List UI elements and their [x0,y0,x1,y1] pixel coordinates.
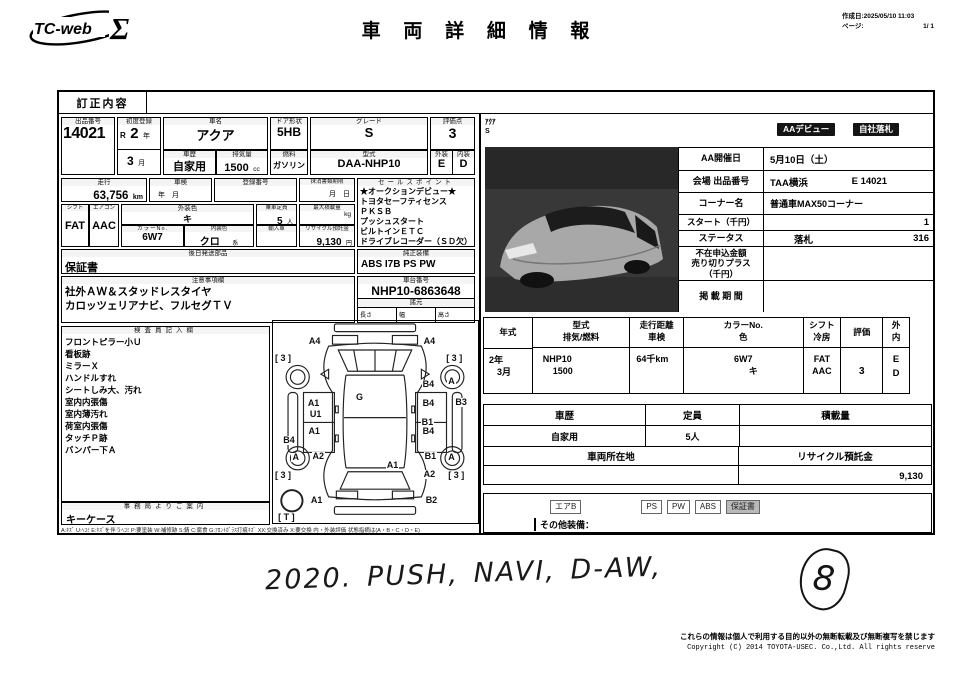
cell-history: 車歴 自家用 [163,150,216,175]
factory-equip-label: 純正装備 [358,250,474,257]
spec-col-color: カラーNo. 色 6W7 キ [684,318,803,393]
auction-venue-value: TAA横浜 [770,175,808,189]
damage-mark: A4 [308,337,322,346]
office-info-value: キーケース [62,510,269,525]
spec-color-header: 色 [684,332,802,344]
spec-ac-header: 冷房 [804,332,841,344]
logo-text: TC-web [34,21,92,38]
line: ＰＫＳＢ [360,207,474,217]
usage-load-header: 積載量 [740,405,931,425]
caption-model: ｱｸｱ [485,118,496,127]
history-label: 車歴 [164,151,215,158]
cell-doc-limit: 抹消書類期限 月 日 [299,178,355,202]
spec-shaken-header: 車検 [630,332,683,344]
handwritten-note: 2020. PUSH, NAVI, D-AW, [265,551,686,597]
cell-fuel: 燃料 ガソリン [270,150,308,175]
notes-list: 社外ＡＷ＆スタッドレスタイヤカロッツェリアナビ、フルセグＴＶ [62,284,354,313]
damage-mark: A2 [423,470,437,479]
cell-grade: グレード S [310,117,428,150]
inspector-notes-label: 検査員記入欄 [62,327,269,334]
ext-color-value: キ [122,212,253,225]
cell-capacity: 乗車定員 5 人 [256,204,297,225]
logo-sigma: Σ [109,11,129,46]
spec-ext-header: 外 [883,320,909,332]
ext-color-label: 外装色 [122,205,253,212]
int-grade-value: D [453,158,474,170]
spec-color-value: キ [684,365,802,377]
sales-points-list: ★オークションデビュー★トヨタセーフティセンスＰＫＳＢプッシュスタートビルトイン… [358,186,474,247]
inspector-notes-list: フロントピラー小Ｕ看板跡ミラーＸハンドルすれシートしみ大、汚れ室内内張傷室内薄汚… [62,334,269,456]
first-reg-month: 3 [127,154,134,168]
auction-row-venue: 会場 出品番号 TAA横浜 E 14021 [679,171,935,193]
usage-history-header: 車歴 [484,405,646,425]
cell-displacement: 排気量 1500 cc [216,150,268,175]
int-color-value: クロ [200,237,220,247]
cell-int-color: 内装色 クロ 系 [184,225,254,247]
auction-row-period: 掲 載 期 間 [679,281,935,312]
auction-venue-label: 会場 出品番号 [679,171,764,192]
cell-max-load: 最大積載量 kg [299,204,355,225]
spec-score-value: 3 [841,348,882,393]
damage-mark: [ 3 ] [274,471,292,480]
damage-mark: B1 [424,452,438,461]
print-meta: 作成日:2025/05/10 11:03 ページ: 1/ 1 [842,12,934,32]
cell-notes: 注意事項欄 社外ＡＷ＆スタッドレスタイヤカロッツェリアナビ、フルセグＴＶ [61,276,355,323]
chassis-value: NHP10-6863648 [358,284,474,299]
shaken-value: 年 月 [150,186,211,200]
cell-aircon: エアコン AAC [89,204,119,247]
auction-row-date: AA開催日 5月10日（土） [679,148,935,171]
page-title: 車 両 詳 細 情 報 [300,16,660,43]
spec-int-header: 内 [883,332,909,344]
score-value: 3 [431,125,474,141]
auction-row-start: スタート（千円） 1 [679,215,935,231]
auction-status-label: ステータス [679,231,764,246]
cell-shift: シフト FAT [61,204,89,247]
imported-label: 輸入車 [257,226,296,232]
auction-row-status: ステータス 落札 316 [679,231,935,247]
correction-row: 訂正内容 [59,92,933,114]
logo-swoosh-icon: TC-web Σ [25,5,137,51]
spec-disp-value: 1500 [543,365,630,377]
spec-colorno-value: 6W7 [684,353,802,365]
factory-equip-value: ABS I7B PS PW [358,257,474,270]
usage-history-value: 自家用 [484,426,646,446]
grade-label: グレード [311,118,427,125]
auction-row-corner: コーナー名 普通車MAX50コーナー [679,193,935,215]
diagram-marks: A4A4[ 3 ][ 3 ]B4AGA1B4B3U1B1A1B4B4AA2B1A… [273,321,478,523]
cell-office-info: 事務局よりご案内 キーケース [61,502,270,525]
damage-mark: A [447,453,456,462]
line: ビルトインＥＴＣ [360,227,474,237]
equipment-box: エアB PS PW ABS 保証書 その他装備： [483,493,932,533]
line: 荷室内張傷 [65,420,269,432]
shaken-label: 車検 [150,179,211,186]
usage-table: 車歴 定員 積載量 自家用 5人 車両所在地 リサイクル預託金 9,130 [483,404,932,485]
auction-status-price: 316 [913,233,929,244]
vehicle-photo [485,147,678,312]
int-grade-label: 内装 [453,151,474,158]
first-reg-label: 初度登録 [118,118,160,125]
spec-mileage-value: 64千km [630,348,683,393]
damage-mark: A1 [307,427,321,436]
equip-badge-pw: PW [667,500,690,514]
cell-sales-points: セールスポイント ★オークションデビュー★トヨタセーフティセンスＰＫＳＢプッシュ… [357,178,475,247]
vehicle-photo-image [485,147,678,312]
spec-col-mileage: 走行距離 車検 64千km [630,318,684,393]
spec-mileage-header: 走行距離 [630,320,683,332]
damage-mark: A [291,453,300,462]
sales-points-label: セールスポイント [358,179,474,186]
auction-corner-label: コーナー名 [679,193,764,214]
cell-exhibit-no: 出品番号 14021 [61,117,115,175]
damage-mark: [ 3 ] [274,354,292,363]
caption-grade: S [485,127,496,136]
line: ドライブレコーダー（ＳＤ欠） [360,237,474,247]
cell-later-parts: 後日発送部品 保証書 [61,249,355,274]
doc-limit-value: 月 日 [300,185,354,199]
auction-period-label: 掲 載 期 間 [679,281,764,312]
spec-disp-header: 排気/燃料 [533,332,630,344]
spec-int-value: D [883,367,909,381]
cell-color-no: カラーNo. 6W7 [121,225,184,247]
damage-mark: B4 [422,427,436,436]
spec-model-header: 型式 [533,320,630,332]
mileage-unit: km [133,194,143,201]
spec-model-value: NHP10 [543,353,630,365]
line: ハンドルすれ [65,372,269,384]
line: 社外ＡＷ＆スタッドレスタイヤ [65,286,354,300]
usage-capacity-value: 5人 [646,426,740,446]
aa-debut-badge: AAデビュー [777,123,835,136]
cell-door: ドア形状 5HB [270,117,308,150]
spec-month-value: 3月 [489,366,532,378]
damage-legend: A:ｷｽﾞ U:ﾍｺﾐ E:ｷｽﾞを伴うﾍｺﾐ P:要塗装 W:補修跡 S:錆 … [61,526,477,534]
damage-mark: A1 [386,461,400,470]
cell-first-reg: 初度登録 R 2 年 3 月 [117,117,161,175]
line: カロッツェリアナビ、フルセグＴＶ [65,300,354,314]
cell-car-name: 車名 アクア [163,117,268,150]
damage-mark: A4 [423,337,437,346]
line: 看板跡 [65,348,269,360]
exhibit-no-label: 出品番号 [62,118,114,125]
damage-mark: A [447,377,456,386]
displacement-value: 1500 [224,162,248,174]
panel-divider [479,114,481,535]
fuel-value: ガソリン [271,158,307,171]
door-value: 5HB [271,125,307,139]
car-name-label: 車名 [164,118,267,125]
later-parts-value: 保証書 [62,257,354,274]
own-bid-badge: 自社落札 [853,123,899,136]
damage-mark: A2 [312,452,326,461]
mileage-value: 63,756 [93,190,128,202]
line: バンパー下Ａ [65,444,269,456]
chassis-label: 車台番号 [358,277,474,284]
ext-grade-label: 外装 [431,151,452,158]
score-label: 評価点 [431,118,474,125]
spec-ac-value: AAC [804,365,841,377]
footer-copyright: Copyright (C) 2014 TOYOTA-USEC. Co.,Ltd.… [555,643,935,654]
int-color-unit: 系 [224,241,238,247]
cell-score: 評価点 3 [430,117,475,150]
capacity-value: 5 [277,216,283,225]
line: 室内薄汚れ [65,408,269,420]
photo-caption: ｱｸｱ S [485,118,496,136]
auction-absent-label: 不在申込金額 売り切りプラス （千円） [679,247,764,280]
cell-model-code: 型式 DAA-NHP10 [310,150,428,175]
spec-ext-value: E [883,353,909,367]
recycle-fee-value: 9,130 [317,237,342,247]
mileage-label: 走行 [62,179,146,186]
usage-load-value [740,426,931,446]
spec-shift-header: シフト [804,320,841,332]
usage-location-header: 車両所在地 [484,447,739,465]
later-parts-label: 後日発送部品 [62,250,354,257]
cell-shaken: 車検 年 月 [149,178,212,202]
cell-chassis: 車台番号 NHP10-6863648 諸元 長さ 幅 高さ [357,276,475,323]
cell-mileage: 走行 63,756 km [61,178,147,202]
page-number-value: 1/ 1 [923,22,934,32]
fuel-label: 燃料 [271,151,307,158]
line: タッチＰ跡 [65,432,269,444]
damage-mark: A1 [310,496,324,505]
usage-recycle-header: リサイクル預託金 [739,447,931,465]
usage-location-value [484,466,739,485]
car-name-value: アクア [164,125,267,144]
damage-mark: B2 [425,496,439,505]
color-no-value: 6W7 [122,232,183,243]
damage-mark: U1 [309,410,323,419]
auction-row-absent: 不在申込金額 売り切りプラス （千円） [679,247,935,281]
model-code-label: 型式 [311,151,427,158]
spec-col-shift: シフト 冷房 FAT AAC [804,318,842,393]
first-reg-era: R [120,131,126,140]
spec-col-year: 年式 2年 3月 [484,318,533,393]
spec-table: 年式 2年 3月 型式 排気/燃料 NHP10 1500 走行距離 [483,317,910,394]
tcweb-logo: TC-web Σ [25,5,137,51]
grade-value: S [311,125,427,140]
cell-ext-color: 外装色 キ [121,204,254,225]
equip-badge-abs: ABS [695,500,721,514]
model-code-value: DAA-NHP10 [311,158,427,170]
auction-venue-no: E 14021 [852,176,929,187]
displacement-label: 排気量 [217,151,267,158]
cell-imported: 輸入車 [256,225,297,247]
aircon-label: エアコン [90,205,118,211]
footer-notice: これらの情報は個人で利用する目的以外の無断転載及び無断複写を禁じます [555,631,935,643]
page-number-label: ページ: [842,22,864,32]
damage-mark: G [355,393,364,402]
damage-mark: B4 [422,399,436,408]
spec-colorno-header: カラーNo. [684,320,802,332]
damage-mark: B3 [454,398,468,407]
spec-year-value: 2年 [489,354,532,366]
spec-col-extint: 外 内 E D [883,318,909,393]
damage-mark: B4 [282,436,296,445]
correction-label: 訂正内容 [59,92,147,114]
line: フロントピラー小Ｕ [65,336,269,348]
spec-col-model: 型式 排気/燃料 NHP10 1500 [533,318,631,393]
damage-mark: A1 [307,399,321,408]
shift-value: FAT [62,211,88,232]
door-label: ドア形状 [271,118,307,125]
line: 室内内張傷 [65,396,269,408]
aircon-value: AAC [90,211,118,232]
first-reg-year: 2 [130,125,138,142]
usage-capacity-header: 定員 [646,405,740,425]
ext-grade-value: E [431,158,452,170]
first-reg-month-unit: 月 [138,160,145,167]
auction-date-label: AA開催日 [679,148,764,170]
damage-mark: [ 3 ] [445,354,463,363]
spec-score-header: 評価 [841,318,882,348]
reg-no-label: 登録番号 [215,179,296,186]
line: ★オークションデビュー★ [360,187,474,197]
auction-status-value: 落札 [770,232,813,246]
first-reg-year-unit: 年 [143,133,150,140]
usage-recycle-value: 9,130 [739,466,931,485]
equip-badge-ps: PS [641,500,662,514]
cell-factory-equip: 純正装備 ABS I7B PS PW [357,249,475,274]
auction-start-value: 1 [924,217,929,228]
equipment-badges: エアB PS PW ABS 保証書 [484,494,931,514]
dims-label: 諸元 [358,299,474,306]
auction-sheet-page: TC-web Σ 車 両 詳 細 情 報 作成日:2025/05/10 11:0… [0,0,955,675]
spec-shift-value: FAT [804,353,841,365]
auction-date-value: 5月10日（土） [770,152,833,166]
spec-col-score: 評価 3 [841,318,883,393]
sheet-frame: 訂正内容 出品番号 14021 初度登録 R 2 年 3 月 車名 アクア [57,90,935,535]
damage-diagram: A4A4[ 3 ][ 3 ]B4AGA1B4B3U1B1A1B4B4AA2B1A… [272,320,479,524]
handwritten-circle-mark: 8 [793,543,855,615]
cell-ext-int-grade: 外装 E 内装 D [430,150,475,175]
line: トヨタセーフティセンス [360,197,474,207]
spec-year-header: 年式 [484,318,532,349]
equip-badge-airbag: エアB [550,500,581,514]
history-value: 自家用 [164,158,215,174]
damage-mark: [ 3 ] [447,471,465,480]
auction-corner-value: 普通車MAX50コーナー [770,197,863,210]
equip-badge-warranty: 保証書 [726,500,760,514]
damage-mark: [ T ] [277,513,296,522]
displacement-unit: cc [253,166,260,173]
footer: これらの情報は個人で利用する目的以外の無断転載及び無断複写を禁じます Copyr… [555,631,935,654]
line: シートしみ大、汚れ [65,384,269,396]
cell-reg-no: 登録番号 [214,178,297,202]
cell-recycle-fee: リサイクル預託金 9,130 円 [299,225,355,247]
max-load-unit: kg [300,211,354,218]
cell-inspector-notes: 検査員記入欄 フロントピラー小Ｕ看板跡ミラーＸハンドルすれシートしみ大、汚れ室内… [61,326,270,502]
line: プッシュスタート [360,217,474,227]
notes-label: 注意事項欄 [62,277,354,284]
created-date: 作成日:2025/05/10 11:03 [842,12,934,22]
line: ミラーＸ [65,360,269,372]
exhibit-no-value: 14021 [62,125,114,143]
auction-start-label: スタート（千円） [679,215,764,230]
office-info-label: 事務局よりご案内 [62,503,269,510]
other-equip-label: その他装備： [534,518,594,531]
auction-info-table: AA開催日 5月10日（土） 会場 出品番号 TAA横浜 E 14021 コーナ… [678,147,935,312]
handwritten-mark-value: 8 [811,558,837,600]
recycle-fee-unit: 円 [346,241,352,247]
damage-mark: B4 [422,380,436,389]
